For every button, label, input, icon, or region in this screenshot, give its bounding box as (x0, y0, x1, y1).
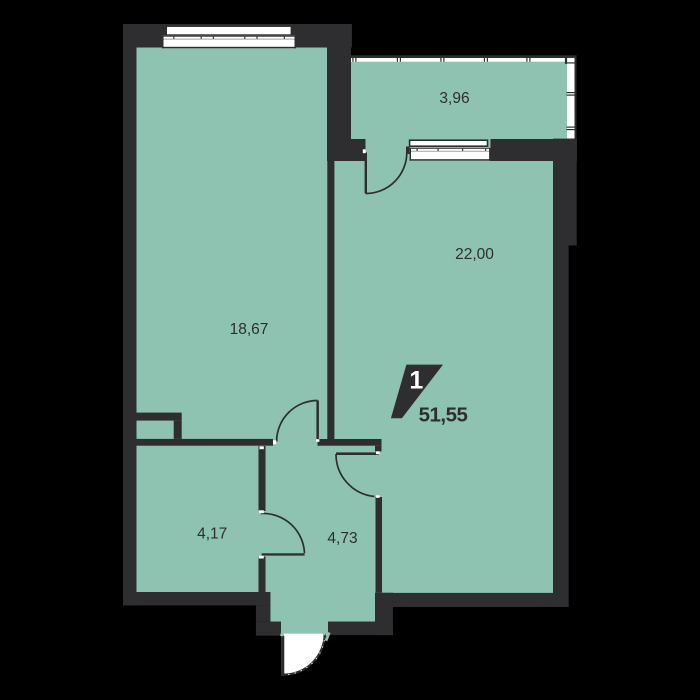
svg-text:4,17: 4,17 (197, 525, 227, 542)
svg-text:1: 1 (409, 367, 423, 395)
svg-text:51,55: 51,55 (419, 403, 468, 426)
svg-text:4,73: 4,73 (327, 530, 357, 547)
svg-text:3,96: 3,96 (439, 90, 469, 107)
svg-text:18,67: 18,67 (230, 321, 269, 338)
svg-text:22,00: 22,00 (455, 246, 494, 263)
